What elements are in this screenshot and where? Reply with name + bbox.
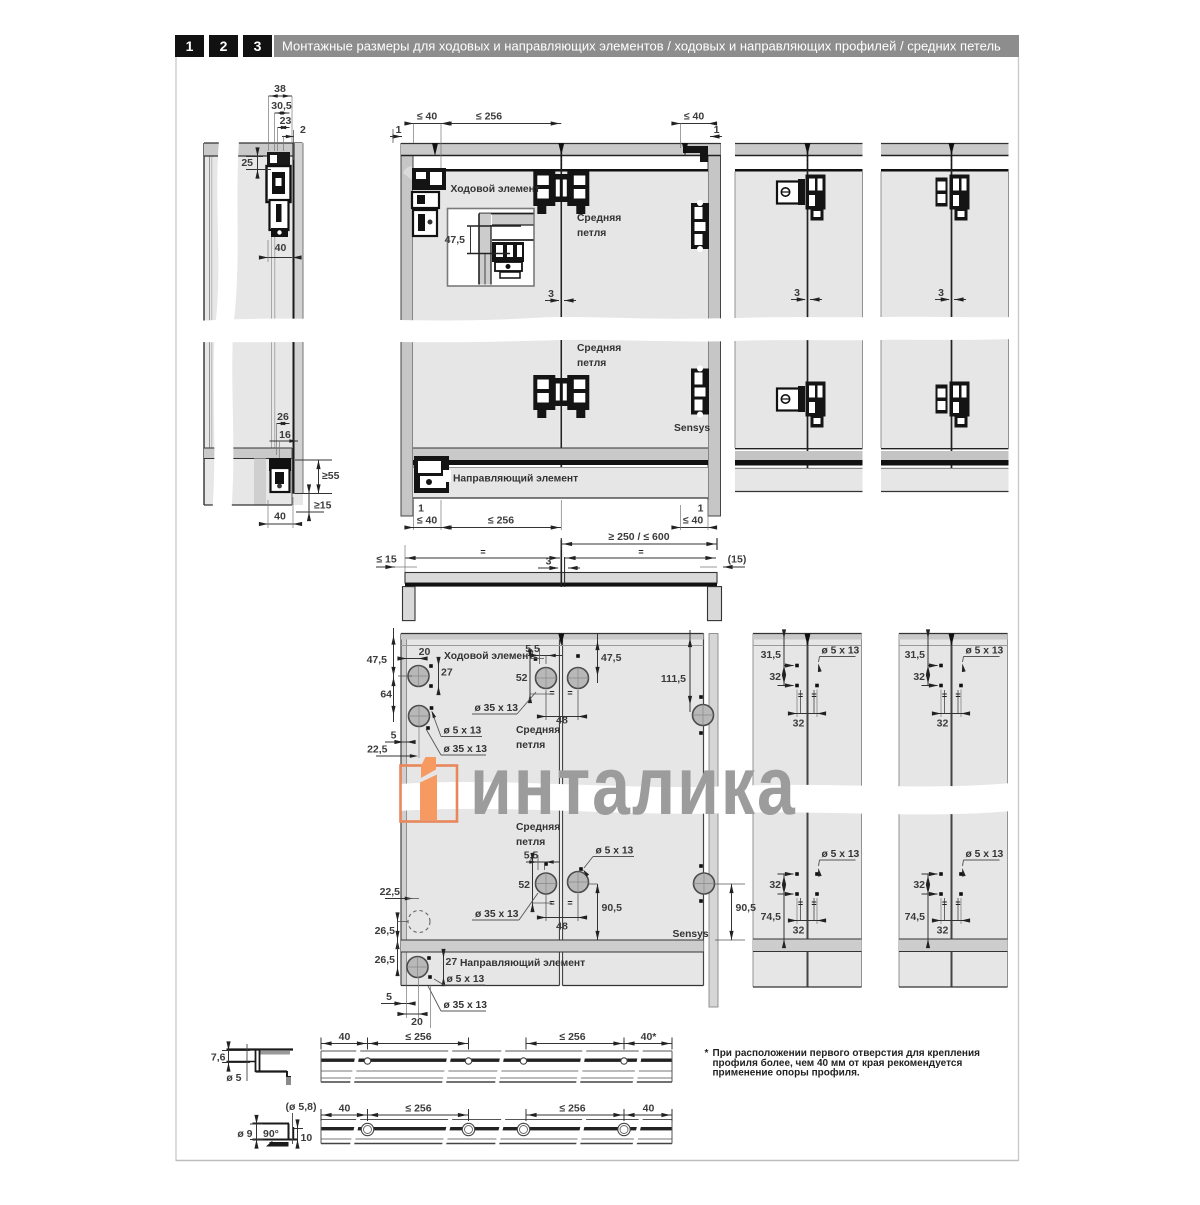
svg-text:32: 32 [937, 925, 949, 937]
svg-text:1: 1 [698, 503, 704, 515]
svg-text:Монтажные размеры для ходовых: Монтажные размеры для ходовых и направля… [282, 39, 1001, 54]
svg-text:Средняя: Средняя [516, 725, 560, 736]
svg-text:≤ 40: ≤ 40 [417, 111, 438, 123]
svg-text:ø 5 x 13: ø 5 x 13 [447, 974, 485, 985]
svg-text:≤ 40: ≤ 40 [683, 515, 704, 527]
svg-text:(15): (15) [728, 554, 747, 566]
svg-text:27: 27 [441, 667, 453, 679]
svg-text:применение опоры профиля.: применение опоры профиля. [713, 1067, 860, 1079]
svg-text:Ходовой элемент: Ходовой элемент [444, 651, 533, 662]
svg-text:32: 32 [769, 671, 781, 683]
svg-text:40: 40 [339, 1031, 351, 1043]
svg-text:≥55: ≥55 [322, 470, 340, 482]
svg-text:32: 32 [913, 879, 925, 891]
svg-text:2: 2 [220, 38, 228, 54]
svg-text:64: 64 [380, 689, 392, 701]
svg-text:=: = [955, 691, 960, 701]
svg-text:27: 27 [446, 956, 458, 968]
svg-text:ø 5 x 13: ø 5 x 13 [444, 726, 482, 737]
svg-text:≤ 40: ≤ 40 [684, 111, 705, 123]
svg-text:3: 3 [546, 556, 552, 568]
svg-text:=: = [567, 688, 572, 698]
svg-text:ø 35 x 13: ø 35 x 13 [475, 909, 519, 920]
svg-text:52: 52 [518, 879, 530, 891]
svg-text:ø 5 x 13: ø 5 x 13 [966, 849, 1004, 860]
svg-text:90,5: 90,5 [736, 902, 757, 914]
svg-text:30,5: 30,5 [271, 100, 292, 112]
svg-text:=: = [811, 899, 816, 909]
svg-text:петля: петля [516, 837, 545, 848]
svg-text:26,5: 26,5 [375, 925, 396, 937]
svg-text:Направляющий элемент: Направляющий элемент [460, 958, 585, 969]
svg-text:=: = [811, 691, 816, 701]
svg-text:≤ 256: ≤ 256 [559, 1031, 585, 1043]
svg-text:38: 38 [274, 83, 286, 95]
svg-text:90°: 90° [263, 1128, 279, 1140]
svg-text:≤ 256: ≤ 256 [476, 111, 502, 123]
svg-text:Средняя: Средняя [577, 343, 621, 354]
svg-text:≤ 15: ≤ 15 [376, 554, 397, 566]
svg-text:32: 32 [793, 925, 805, 937]
svg-text:3: 3 [938, 287, 944, 299]
svg-text:48: 48 [556, 921, 568, 933]
svg-text:5: 5 [386, 991, 392, 1003]
svg-text:=: = [798, 899, 803, 909]
svg-text:26: 26 [277, 411, 289, 423]
svg-text:31,5: 31,5 [905, 649, 926, 661]
svg-text:≤ 256: ≤ 256 [405, 1103, 431, 1115]
svg-text:16: 16 [279, 429, 291, 441]
svg-text:32: 32 [937, 718, 949, 730]
svg-text:=: = [942, 691, 947, 701]
svg-text:40: 40 [274, 511, 286, 523]
svg-text:петля: петля [577, 228, 606, 239]
svg-text:ø 35 x 13: ø 35 x 13 [475, 703, 519, 714]
svg-text:≤ 40: ≤ 40 [417, 515, 438, 527]
svg-text:ø 5 x 13: ø 5 x 13 [596, 846, 634, 857]
svg-text:ø 35 x 13: ø 35 x 13 [444, 1000, 488, 1011]
svg-text:52: 52 [516, 672, 528, 684]
svg-text:=: = [798, 691, 803, 701]
svg-text:5,5: 5,5 [525, 643, 540, 655]
svg-text:3: 3 [794, 287, 800, 299]
svg-text:инталика: инталика [470, 740, 797, 833]
svg-text:20: 20 [419, 646, 431, 658]
svg-text:Направляющий элемент: Направляющий элемент [453, 474, 578, 485]
svg-text:=: = [549, 898, 554, 908]
svg-text:≥15: ≥15 [314, 500, 332, 512]
svg-text:74,5: 74,5 [761, 911, 782, 923]
svg-text:=: = [480, 547, 485, 557]
svg-text:ø 5: ø 5 [226, 1072, 241, 1084]
svg-text:25: 25 [241, 157, 253, 169]
svg-text:≤ 256: ≤ 256 [559, 1103, 585, 1115]
svg-text:32: 32 [913, 671, 925, 683]
svg-text:*: * [705, 1048, 709, 1059]
svg-text:22,5: 22,5 [380, 886, 401, 898]
svg-text:(ø 5,8): (ø 5,8) [286, 1101, 317, 1113]
svg-text:74,5: 74,5 [905, 911, 926, 923]
svg-text:40: 40 [643, 1103, 655, 1115]
svg-text:47,5: 47,5 [445, 234, 466, 246]
svg-text:90,5: 90,5 [602, 902, 623, 914]
svg-text:23: 23 [280, 115, 292, 127]
svg-text:32: 32 [769, 879, 781, 891]
svg-text:=: = [567, 898, 572, 908]
svg-text:32: 32 [793, 718, 805, 730]
svg-text:=: = [942, 899, 947, 909]
svg-text:≤ 256: ≤ 256 [405, 1031, 431, 1043]
svg-text:ø 9: ø 9 [237, 1128, 252, 1140]
svg-text:3: 3 [254, 38, 262, 54]
svg-text:22,5: 22,5 [367, 744, 388, 756]
svg-text:Sensys: Sensys [674, 423, 710, 434]
svg-text:петля: петля [577, 358, 606, 369]
svg-text:7,6: 7,6 [211, 1052, 226, 1064]
svg-text:=: = [955, 899, 960, 909]
svg-text:1: 1 [396, 124, 402, 136]
svg-text:Средняя: Средняя [577, 213, 621, 224]
svg-text:26,5: 26,5 [375, 954, 396, 966]
svg-text:1: 1 [714, 124, 720, 136]
svg-text:≥ 250 / ≤ 600: ≥ 250 / ≤ 600 [608, 531, 669, 543]
svg-text:1: 1 [418, 503, 424, 515]
svg-text:ø 5 x 13: ø 5 x 13 [822, 646, 860, 657]
svg-text:31,5: 31,5 [761, 649, 782, 661]
svg-text:40: 40 [275, 242, 287, 254]
svg-text:40*: 40* [641, 1031, 658, 1043]
svg-text:ø 5 x 13: ø 5 x 13 [822, 849, 860, 860]
svg-text:111,5: 111,5 [661, 673, 686, 685]
svg-text:2: 2 [300, 124, 306, 136]
svg-text:47,5: 47,5 [367, 654, 388, 666]
svg-text:1: 1 [186, 38, 194, 54]
svg-text:40: 40 [339, 1103, 351, 1115]
svg-text:5: 5 [391, 730, 397, 742]
svg-text:47,5: 47,5 [601, 652, 622, 664]
svg-text:=: = [549, 688, 554, 698]
svg-text:20: 20 [411, 1016, 423, 1028]
svg-text:ø 5 x 13: ø 5 x 13 [966, 646, 1004, 657]
svg-text:=: = [638, 547, 643, 557]
svg-text:3: 3 [548, 288, 554, 300]
svg-text:Sensys: Sensys [673, 929, 709, 940]
svg-text:≤ 256: ≤ 256 [488, 515, 514, 527]
svg-text:10: 10 [301, 1132, 313, 1144]
svg-text:Ходовой элемент: Ходовой элемент [451, 184, 540, 195]
